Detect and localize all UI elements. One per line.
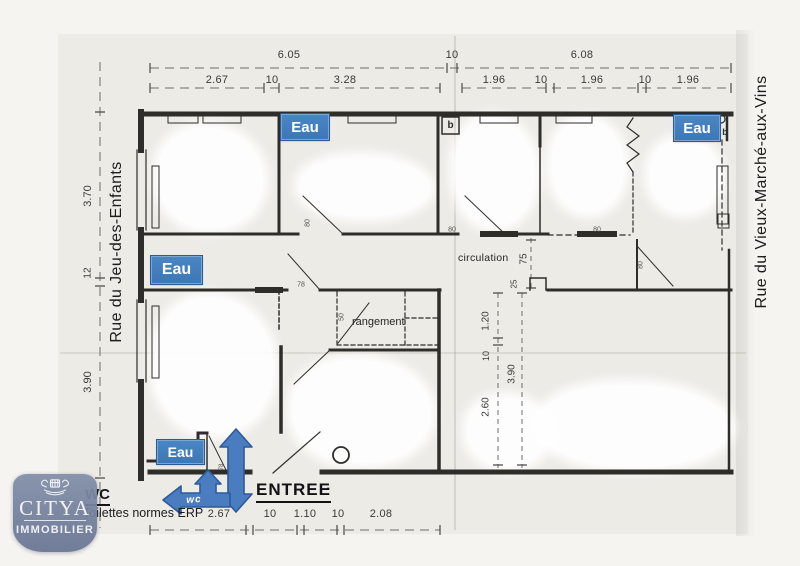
dim-top: 6.08 <box>571 49 594 61</box>
room-label-circulation: circulation <box>458 252 509 264</box>
dim-bottom: 10 <box>264 508 277 520</box>
b-marker: b <box>719 126 731 138</box>
dim-bottom: 2.08 <box>370 508 393 520</box>
dim-inner: 1.20 <box>481 311 492 330</box>
room-label-rangement: rangement <box>352 316 405 328</box>
street-name-right: Rue du Vieux-Marché-aux-Vins <box>753 76 771 309</box>
street-name-left: Rue du Jeu-des-Enfants <box>108 161 126 342</box>
eau-label: Eau <box>157 440 204 464</box>
dim-top2: 10 <box>266 74 279 86</box>
walls <box>137 112 731 478</box>
eau-label: Eau <box>674 115 720 141</box>
dim-top: 6.05 <box>278 49 301 61</box>
door-width: 80 <box>593 227 601 234</box>
dim-top2: 2.67 <box>206 74 229 86</box>
logo-brand-text: CITYA <box>19 498 91 518</box>
dim-inner: 75 <box>519 253 530 264</box>
wc-arrow-label: wc <box>186 494 202 506</box>
door-width: 50 <box>339 313 346 321</box>
dim-left: 12 <box>83 267 94 278</box>
citya-logo: CITYA IMMOBILIER <box>13 474 97 552</box>
door-width: 78 <box>219 464 225 471</box>
logo-divider <box>24 520 86 521</box>
dim-inner: 25 <box>510 280 519 289</box>
citya-crest-icon <box>33 478 77 498</box>
dim-inner: 2.60 <box>481 397 492 416</box>
dim-top2: 10 <box>639 74 652 86</box>
logo-tagline-text: IMMOBILIER <box>16 524 94 536</box>
eau-label: Eau <box>151 256 202 284</box>
dim-inner: 3.90 <box>507 364 518 383</box>
entree-dot: · <box>326 481 331 499</box>
dim-left: 3.90 <box>82 371 94 392</box>
wc-note: Toilettes normes ERP <box>83 506 203 520</box>
dim-bottom: 2.67 <box>208 508 231 520</box>
dim-top: 10 <box>446 49 459 61</box>
eau-label: Eau <box>281 114 329 140</box>
dim-top2: 3.28 <box>334 74 357 86</box>
dim-top2: 1.96 <box>483 74 506 86</box>
entree-label: ENTREE <box>256 480 331 503</box>
dim-top2: 10 <box>535 74 548 86</box>
floorplan-page: Rue du Jeu-des-Enfants Rue du Vieux-Marc… <box>0 0 800 566</box>
dim-left: 3.70 <box>82 185 94 206</box>
door-width: 80 <box>305 219 312 227</box>
door-width: 80 <box>638 261 645 269</box>
dim-top2: 1.96 <box>677 74 700 86</box>
door-width: 80 <box>448 227 456 234</box>
dim-top2: 1.96 <box>581 74 604 86</box>
dim-inner: 10 <box>481 351 491 361</box>
b-marker: b <box>442 117 459 134</box>
dim-bottom: 10 <box>332 508 345 520</box>
door-width: 78 <box>297 282 305 289</box>
dim-bottom: 1.10 <box>294 508 317 520</box>
